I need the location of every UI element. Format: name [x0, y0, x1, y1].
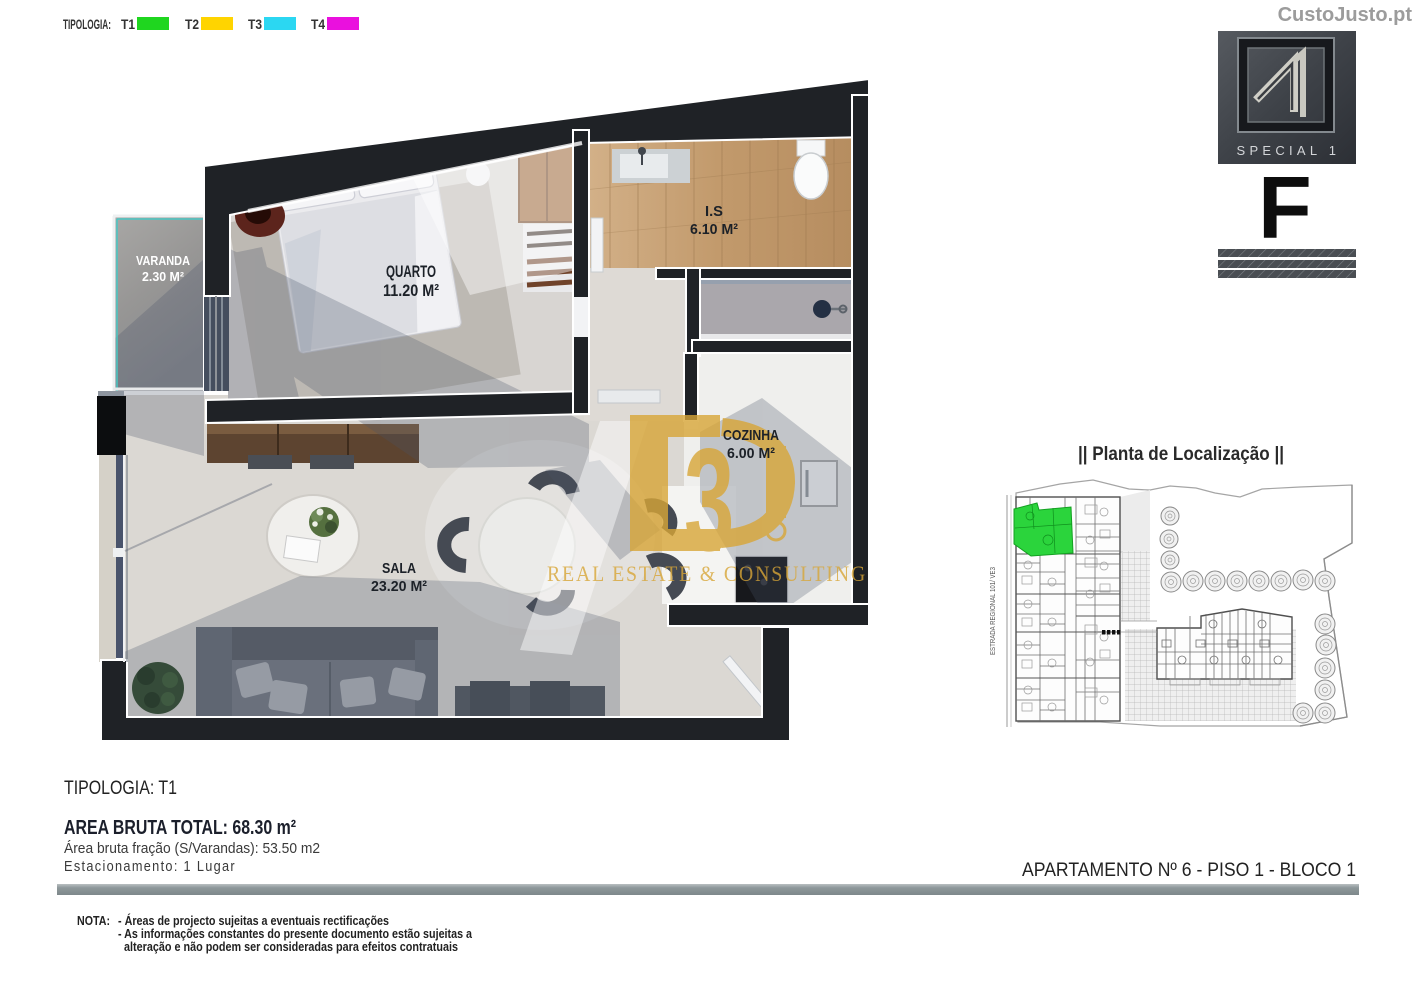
svg-text:T4: T4 — [311, 16, 325, 32]
svg-text:6.00 M²: 6.00 M² — [727, 445, 775, 462]
svg-text:VARANDA: VARANDA — [136, 253, 191, 268]
svg-text:SALA: SALA — [382, 560, 416, 577]
svg-text:CustoJusto.pt: CustoJusto.pt — [1278, 4, 1413, 26]
svg-text:Estacionamento: 1 Lugar: Estacionamento: 1 Lugar — [64, 859, 236, 875]
svg-text:NOTA:: NOTA: — [77, 913, 110, 928]
svg-text:SPECIAL 1: SPECIAL 1 — [1237, 143, 1340, 158]
svg-text:I.S: I.S — [705, 203, 723, 220]
svg-text:6.10 M²: 6.10 M² — [690, 221, 738, 238]
svg-text:Área bruta fração (S/Varandas): Área bruta fração (S/Varandas): 53.50 m2 — [64, 840, 320, 857]
svg-text:COZINHA: COZINHA — [723, 427, 779, 444]
svg-text:QUARTO: QUARTO — [386, 262, 436, 281]
svg-text:2.30 M²: 2.30 M² — [142, 269, 185, 284]
svg-text:APARTAMENTO Nº 6 - PISO 1 - B: APARTAMENTO Nº 6 - PISO 1 - BLOCO 1 — [1022, 860, 1356, 881]
svg-text:T3: T3 — [248, 16, 262, 32]
svg-text:AREA BRUTA TOTAL: 68.30 m²: AREA BRUTA TOTAL: 68.30 m² — [64, 817, 296, 839]
svg-text:ESTRADA REGIONAL 101/ VE3: ESTRADA REGIONAL 101/ VE3 — [988, 567, 997, 655]
svg-text:F: F — [1258, 158, 1312, 257]
svg-text:TIPOLOGIA: T1: TIPOLOGIA: T1 — [64, 778, 177, 799]
svg-text:11.20 M²: 11.20 M² — [383, 281, 439, 300]
svg-text:TIPOLOGIA:: TIPOLOGIA: — [63, 16, 111, 32]
svg-text:T2: T2 — [185, 16, 199, 32]
svg-text:alteração e não podem ser cons: alteração e não podem ser consideradas p… — [124, 939, 458, 954]
svg-text:23.20 M²: 23.20 M² — [371, 578, 427, 595]
svg-text:|| Planta de Localização ||: || Planta de Localização || — [1078, 444, 1284, 465]
svg-text:REAL ESTATE & CONSULTING: REAL ESTATE & CONSULTING — [547, 561, 867, 586]
svg-text:T1: T1 — [121, 16, 135, 32]
